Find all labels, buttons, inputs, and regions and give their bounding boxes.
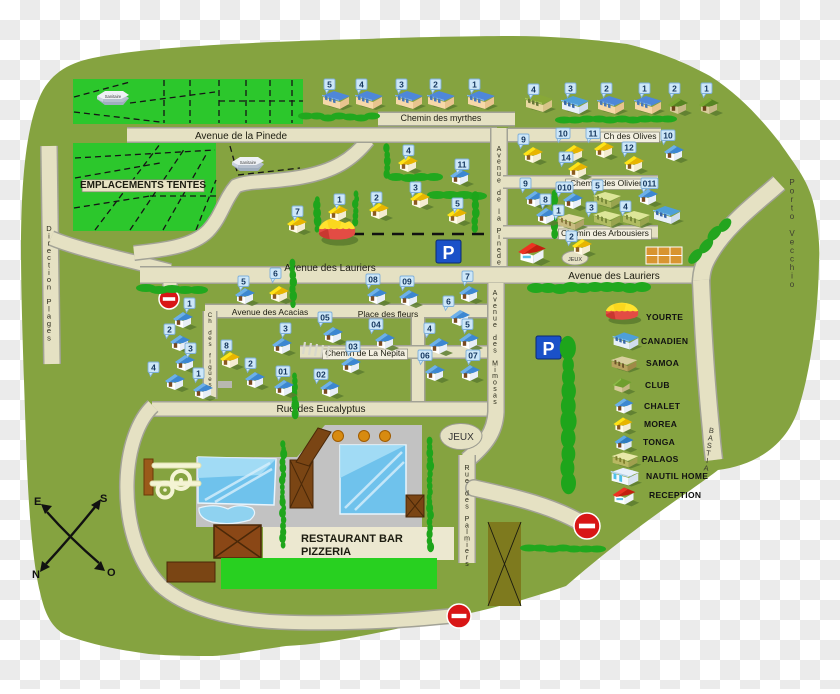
svg-text:e: e bbox=[497, 259, 501, 266]
svg-text:12: 12 bbox=[624, 142, 634, 152]
svg-text:CHALET: CHALET bbox=[644, 401, 681, 411]
svg-text:e: e bbox=[493, 322, 497, 329]
svg-text:7: 7 bbox=[465, 271, 470, 281]
svg-text:06: 06 bbox=[420, 350, 430, 360]
svg-text:NAUTIL HOME: NAUTIL HOME bbox=[646, 471, 708, 481]
svg-text:e: e bbox=[497, 196, 501, 203]
svg-text:02: 02 bbox=[316, 369, 326, 379]
svg-text:4: 4 bbox=[623, 201, 628, 211]
svg-text:Sanitaire: Sanitaire bbox=[240, 160, 257, 165]
svg-text:3: 3 bbox=[589, 202, 594, 212]
svg-text:1: 1 bbox=[187, 298, 192, 308]
svg-text:RECEPTION: RECEPTION bbox=[649, 490, 701, 500]
svg-text:03: 03 bbox=[348, 341, 358, 351]
svg-text:2: 2 bbox=[569, 231, 574, 241]
svg-text:10: 10 bbox=[558, 128, 568, 138]
svg-text:a: a bbox=[497, 215, 501, 222]
svg-text:s: s bbox=[208, 341, 211, 348]
svg-text:P: P bbox=[442, 243, 454, 263]
svg-text:SAMOA: SAMOA bbox=[646, 358, 679, 368]
svg-text:9: 9 bbox=[523, 178, 528, 188]
svg-text:1: 1 bbox=[642, 83, 647, 93]
svg-text:PALAOS: PALAOS bbox=[642, 454, 679, 464]
svg-text:h: h bbox=[208, 318, 212, 325]
svg-text:JEUX: JEUX bbox=[448, 432, 474, 443]
svg-text:2: 2 bbox=[433, 79, 438, 89]
svg-text:e: e bbox=[497, 178, 501, 185]
svg-text:1: 1 bbox=[704, 83, 709, 93]
svg-text:4: 4 bbox=[531, 84, 536, 94]
svg-text:010: 010 bbox=[557, 182, 571, 192]
svg-text:3: 3 bbox=[413, 182, 418, 192]
svg-text:1: 1 bbox=[472, 79, 477, 89]
svg-text:3: 3 bbox=[188, 343, 193, 353]
svg-text:4: 4 bbox=[406, 145, 411, 155]
svg-text:7: 7 bbox=[295, 206, 300, 216]
svg-text:3: 3 bbox=[399, 79, 404, 89]
svg-text:Sanitaire: Sanitaire bbox=[105, 94, 122, 99]
svg-text:5: 5 bbox=[595, 180, 600, 190]
svg-text:TONGA: TONGA bbox=[643, 437, 675, 447]
svg-text:2: 2 bbox=[248, 358, 253, 368]
svg-text:011: 011 bbox=[643, 178, 657, 188]
svg-text:08: 08 bbox=[368, 274, 378, 284]
svg-text:O: O bbox=[107, 567, 116, 579]
svg-text:EMPLACEMENTS TENTES: EMPLACEMENTS TENTES bbox=[80, 180, 206, 191]
svg-text:e: e bbox=[465, 478, 469, 485]
svg-text:Avenue des Acacias: Avenue des Acacias bbox=[232, 307, 308, 317]
svg-text:05: 05 bbox=[320, 312, 330, 322]
svg-text:10: 10 bbox=[663, 130, 673, 140]
svg-text:1: 1 bbox=[556, 205, 561, 215]
svg-text:2: 2 bbox=[672, 83, 677, 93]
svg-text:4: 4 bbox=[427, 323, 432, 333]
svg-text:s: s bbox=[465, 503, 469, 510]
svg-text:Avenue des Lauriers: Avenue des Lauriers bbox=[284, 263, 376, 274]
svg-text:o: o bbox=[790, 280, 795, 289]
svg-text:Chemin des Oliviers: Chemin des Oliviers bbox=[570, 178, 646, 188]
svg-text:N: N bbox=[32, 569, 40, 581]
svg-text:CLUB: CLUB bbox=[645, 380, 670, 390]
svg-text:07: 07 bbox=[468, 350, 478, 360]
svg-text:o: o bbox=[790, 212, 795, 221]
svg-text:6: 6 bbox=[273, 268, 278, 278]
svg-text:s: s bbox=[465, 561, 469, 568]
svg-text:2: 2 bbox=[374, 192, 379, 202]
svg-text:Avenue de la Pinede: Avenue de la Pinede bbox=[195, 131, 288, 142]
svg-text:04: 04 bbox=[371, 319, 381, 329]
svg-text:6: 6 bbox=[446, 296, 451, 306]
svg-text:RESTAURANT BAR: RESTAURANT BAR bbox=[301, 533, 403, 545]
svg-text:3: 3 bbox=[283, 323, 288, 333]
svg-text:09: 09 bbox=[402, 276, 412, 286]
svg-text:9: 9 bbox=[521, 134, 526, 144]
svg-text:2: 2 bbox=[167, 324, 172, 334]
svg-text:8: 8 bbox=[543, 194, 548, 204]
svg-text:Rue des Eucalyptus: Rue des Eucalyptus bbox=[277, 404, 366, 415]
svg-text:Place des fleurs: Place des fleurs bbox=[358, 309, 418, 319]
svg-text:5: 5 bbox=[241, 276, 246, 286]
svg-text:5: 5 bbox=[455, 198, 460, 208]
svg-text:s: s bbox=[47, 334, 51, 343]
svg-text:11: 11 bbox=[589, 128, 598, 138]
svg-text:PIZZERIA: PIZZERIA bbox=[301, 546, 351, 558]
svg-text:E: E bbox=[34, 496, 41, 508]
svg-text:n: n bbox=[47, 282, 51, 291]
svg-text:Avenue des Lauriers: Avenue des Lauriers bbox=[568, 271, 660, 282]
svg-text:YOURTE: YOURTE bbox=[646, 312, 683, 322]
svg-text:11: 11 bbox=[458, 159, 467, 169]
svg-text:CANADIEN: CANADIEN bbox=[641, 336, 688, 346]
svg-text:1: 1 bbox=[196, 368, 201, 378]
svg-text:5: 5 bbox=[465, 319, 470, 329]
svg-text:4: 4 bbox=[359, 79, 364, 89]
svg-text:1: 1 bbox=[337, 194, 342, 204]
svg-text:S: S bbox=[100, 493, 107, 505]
svg-text:3: 3 bbox=[568, 83, 573, 93]
svg-text:MOREA: MOREA bbox=[644, 419, 677, 429]
svg-text:s: s bbox=[493, 399, 497, 406]
svg-text:Chemin des myrthes: Chemin des myrthes bbox=[401, 113, 482, 123]
svg-text:8: 8 bbox=[224, 340, 229, 350]
svg-text:01: 01 bbox=[278, 366, 288, 376]
svg-text:2: 2 bbox=[604, 83, 609, 93]
svg-text:JEUX: JEUX bbox=[568, 257, 582, 263]
svg-text:P: P bbox=[542, 339, 554, 359]
svg-text:s: s bbox=[493, 348, 497, 355]
svg-text:5: 5 bbox=[327, 79, 332, 89]
svg-text:Ch des Olives: Ch des Olives bbox=[604, 131, 657, 141]
svg-text:14: 14 bbox=[561, 152, 571, 162]
svg-text:4: 4 bbox=[151, 362, 156, 372]
